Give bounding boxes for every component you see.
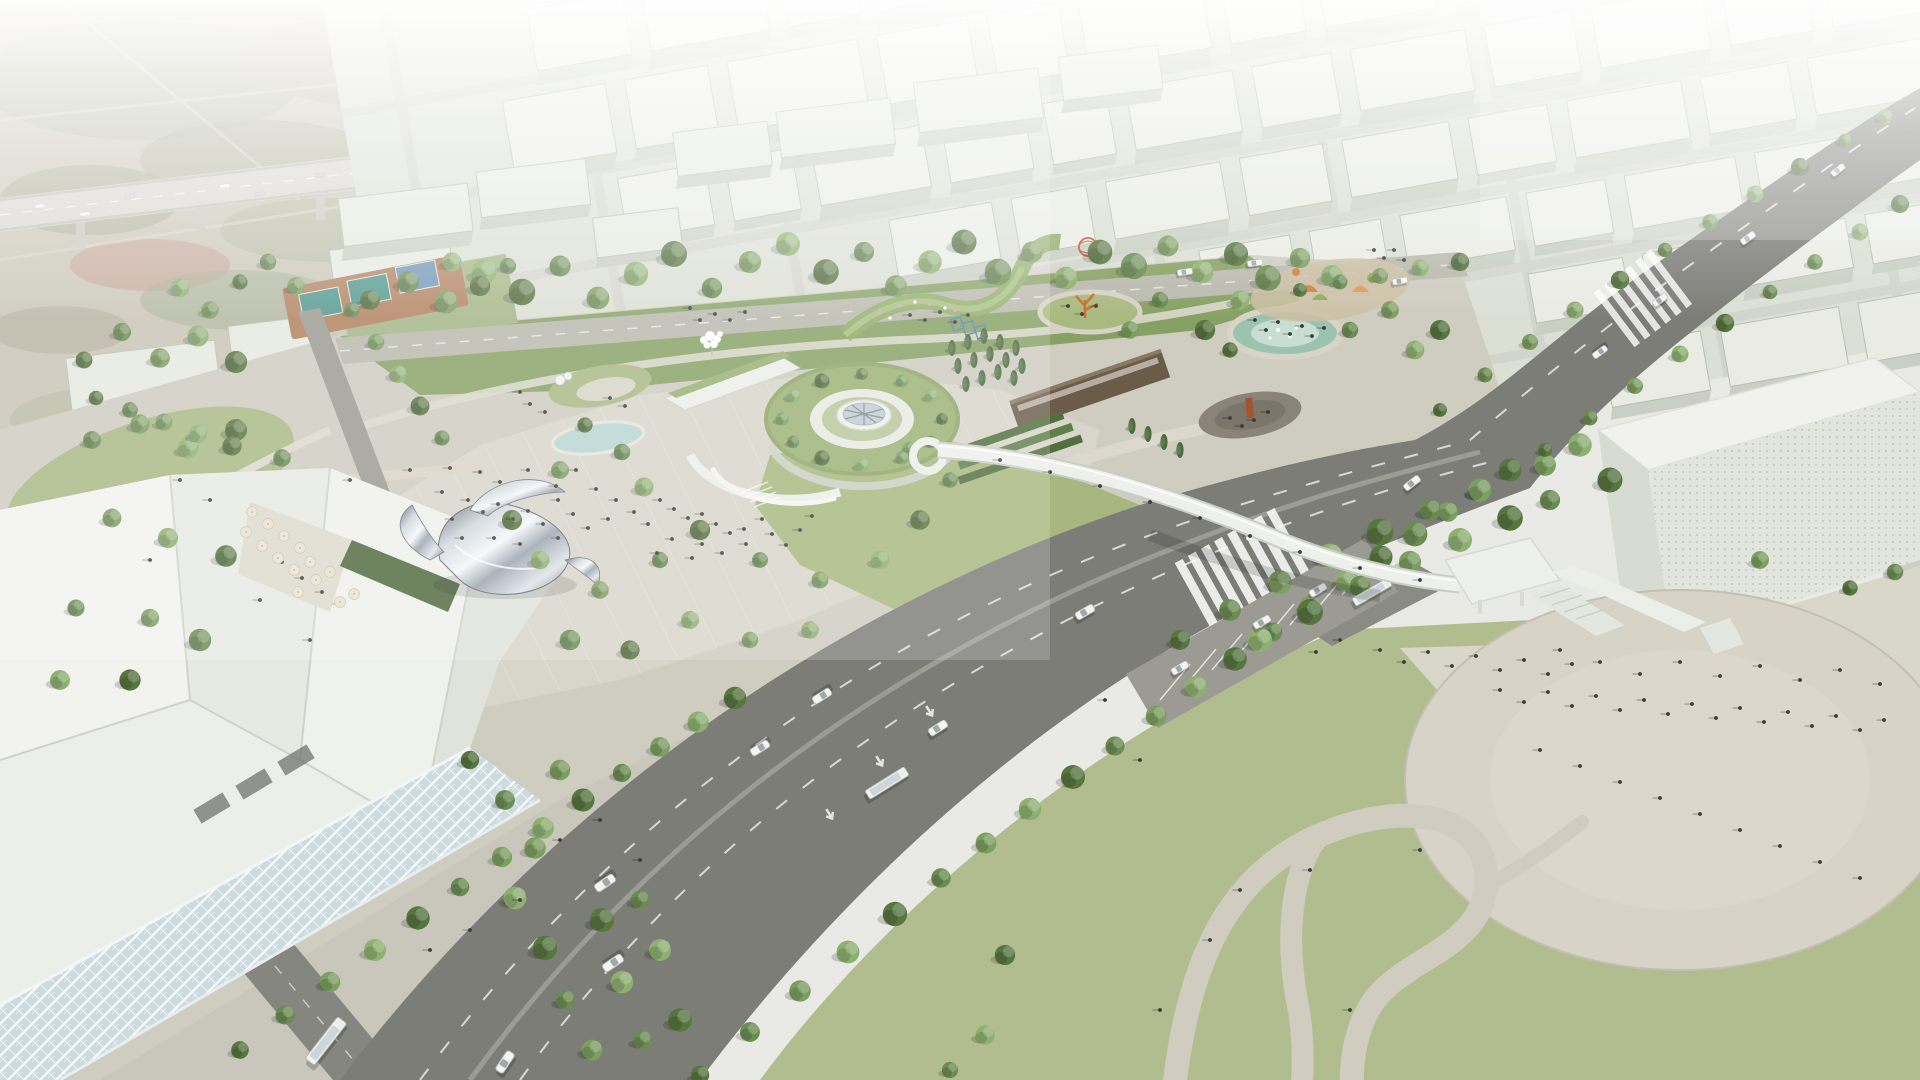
scene-canvas (0, 0, 1920, 1080)
architectural-rendering-park-masterplan (0, 0, 1920, 1080)
corner-haze (1480, 0, 1920, 240)
